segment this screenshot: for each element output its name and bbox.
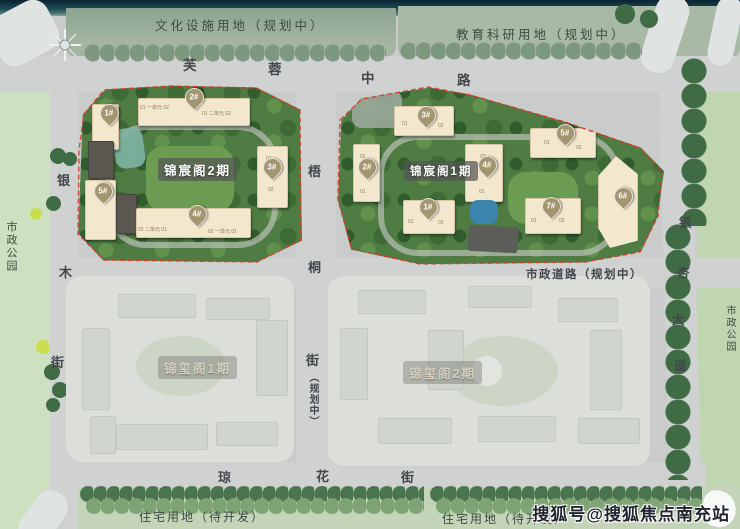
unit-label: 02 <box>268 187 274 193</box>
watermark: 搜狐号@搜狐焦点南充站 <box>532 500 730 525</box>
faded-building <box>118 294 196 318</box>
unit-label: 01 <box>544 140 550 146</box>
compass-icon <box>46 26 84 64</box>
faded-building <box>590 330 622 410</box>
label-education-land: 教育科研用地（规划中） <box>456 24 627 43</box>
road-char-yinxing-2: 大 <box>672 309 685 328</box>
faded-building <box>578 418 640 444</box>
label-right-park: 市政公园 <box>722 305 737 353</box>
unit-label: 01 <box>479 189 485 195</box>
podium-building <box>88 141 114 179</box>
road-char-yinxing-1: 杏 <box>677 262 690 281</box>
tree <box>46 398 60 412</box>
unit-label: 01 <box>360 189 366 195</box>
tree <box>46 196 61 211</box>
unit-label: 02 <box>438 123 444 129</box>
road-char-yinmu-1: 木 <box>59 262 72 281</box>
block-jinxi-phase2: 锦玺阁2期 <box>328 276 650 466</box>
label-left-park: 市政公园 <box>3 221 19 273</box>
swimming-pool <box>470 200 498 224</box>
phase-label-jinchen2: 锦宸阁2期 <box>158 158 237 181</box>
faded-building <box>90 416 116 454</box>
phase-label-jinxi1: 锦玺阁1期 <box>158 356 237 379</box>
block-jinxi-phase1: 锦玺阁1期 <box>66 276 294 462</box>
tree-bright <box>30 208 42 220</box>
faded-building <box>82 328 110 410</box>
unit-label: 02 <box>576 145 582 151</box>
zone-left-park <box>0 56 52 529</box>
road-char-qionghua-1: 花 <box>316 466 329 485</box>
road-char-wutong-0: 梧 <box>308 161 321 180</box>
tree <box>640 10 658 28</box>
site-plan-map: 锦玺阁1期 锦玺阁2期 01 一单元 02 01 二单元 02 02 二单元 0… <box>0 0 740 529</box>
faded-building <box>206 298 270 320</box>
faded-building <box>116 424 208 450</box>
road-char-qionghua-0: 琼 <box>218 467 231 486</box>
label-residential-left: 住宅用地（待开发） <box>139 508 265 525</box>
faded-building <box>256 320 288 396</box>
faded-building <box>216 422 278 446</box>
road-char-yinxing-0: 银 <box>679 212 692 231</box>
tree-col-yinxing-upper <box>680 58 708 226</box>
road-char-yinxing-3: 道 <box>674 355 687 374</box>
faded-building <box>358 290 426 314</box>
block-jinchen-phase1: 01 02 01 02 02 01 02 01 01 02 01 02 1# 2… <box>338 84 664 266</box>
road-char-furong-3: 路 <box>457 69 471 89</box>
phase-label-jinchen1: 锦宸阁1期 <box>404 161 478 181</box>
road-label-wutong-planned: （规划中） <box>305 372 320 427</box>
faded-building <box>340 328 368 400</box>
faded-building <box>468 286 532 308</box>
unit-label: 02 一单元 01 <box>208 228 237 235</box>
unit-label: 01 <box>531 218 537 224</box>
phase-label-jinxi2: 锦玺阁2期 <box>403 361 482 384</box>
road-char-furong-1: 蓉 <box>268 58 282 78</box>
unit-label: 01 二单元 02 <box>202 110 231 117</box>
tree-row-cultural <box>84 44 386 62</box>
unit-label: 02 二单元 01 <box>138 226 167 233</box>
road-label-municipal: 市政道路（规划中） <box>526 266 643 282</box>
road-char-furong-2: 中 <box>361 67 375 87</box>
unit-label: 02 <box>438 220 444 226</box>
entry-plaza <box>467 225 518 254</box>
road-char-wutong-2: 街 <box>306 350 319 369</box>
faded-building <box>478 416 556 442</box>
podium-building <box>116 194 137 234</box>
label-cultural-land: 文化设施用地（规划中） <box>155 15 326 34</box>
tree-bright <box>36 340 50 354</box>
road-char-wutong-1: 桐 <box>308 257 321 276</box>
tree-row-education <box>400 42 642 60</box>
unit-label: 01 <box>408 219 414 225</box>
tree <box>63 152 77 166</box>
tree <box>615 4 635 24</box>
road-char-yinmu-2: 街 <box>51 352 64 371</box>
unit-label: 02 <box>559 218 565 224</box>
road-char-yinmu-0: 银 <box>57 170 70 189</box>
block-jinchen-phase2: 01 一单元 02 01 二单元 02 02 二单元 01 02 一单元 01 … <box>76 84 302 264</box>
unit-label: 01 一单元 02 <box>140 104 169 111</box>
faded-building <box>558 298 618 322</box>
road-char-furong-0: 芙 <box>183 54 197 74</box>
road-char-qionghua-2: 街 <box>401 467 414 486</box>
faded-building <box>378 418 452 444</box>
unit-label: 01 <box>402 121 408 127</box>
